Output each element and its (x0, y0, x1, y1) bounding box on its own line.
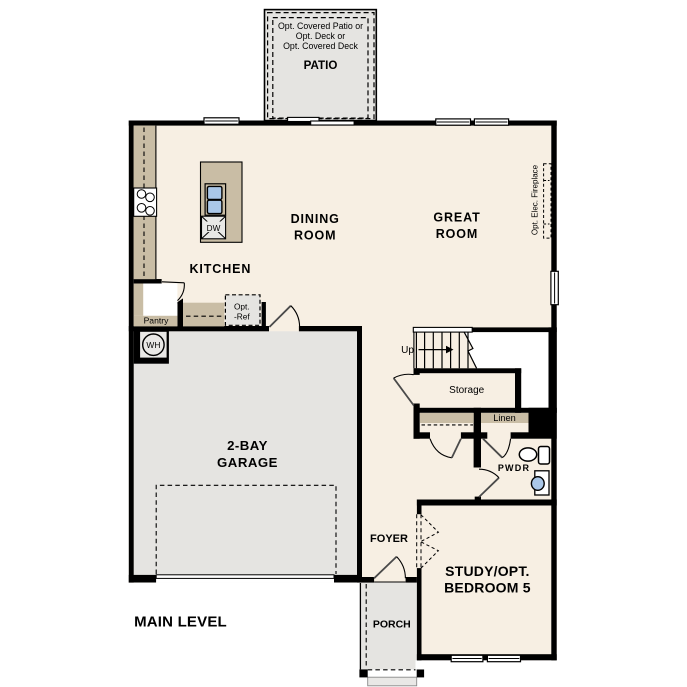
svg-text:MAIN LEVEL: MAIN LEVEL (134, 613, 227, 630)
svg-text:DW: DW (207, 224, 221, 233)
svg-text:Pantry: Pantry (144, 316, 170, 326)
svg-text:Opt.: Opt. (234, 301, 250, 311)
svg-text:Storage: Storage (449, 385, 484, 396)
svg-text:BEDROOM 5: BEDROOM 5 (444, 580, 531, 596)
svg-text:Opt. Deck or: Opt. Deck or (296, 31, 345, 41)
svg-text:PORCH: PORCH (373, 618, 411, 630)
svg-text:PATIO: PATIO (304, 59, 338, 72)
svg-text:Opt. Covered Deck: Opt. Covered Deck (283, 41, 358, 51)
svg-text:Opt. Covered Patio or: Opt. Covered Patio or (278, 21, 363, 31)
svg-text:ROOM: ROOM (294, 229, 337, 243)
svg-text:Up: Up (401, 345, 414, 356)
svg-text:-Ref: -Ref (234, 312, 250, 322)
svg-text:DINING: DINING (291, 212, 340, 226)
svg-text:FOYER: FOYER (370, 533, 408, 545)
svg-text:WH: WH (146, 340, 160, 350)
svg-text:STUDY/OPT.: STUDY/OPT. (445, 563, 529, 579)
svg-text:GARAGE: GARAGE (217, 455, 278, 470)
svg-text:PWDR: PWDR (498, 463, 530, 473)
svg-text:GREAT: GREAT (433, 210, 480, 224)
svg-text:Linen: Linen (493, 413, 515, 423)
svg-text:KITCHEN: KITCHEN (189, 262, 251, 276)
svg-text:ROOM: ROOM (436, 227, 479, 241)
svg-text:2-BAY: 2-BAY (227, 438, 268, 453)
svg-text:Opt. Elec. Fireplace: Opt. Elec. Fireplace (531, 164, 540, 235)
